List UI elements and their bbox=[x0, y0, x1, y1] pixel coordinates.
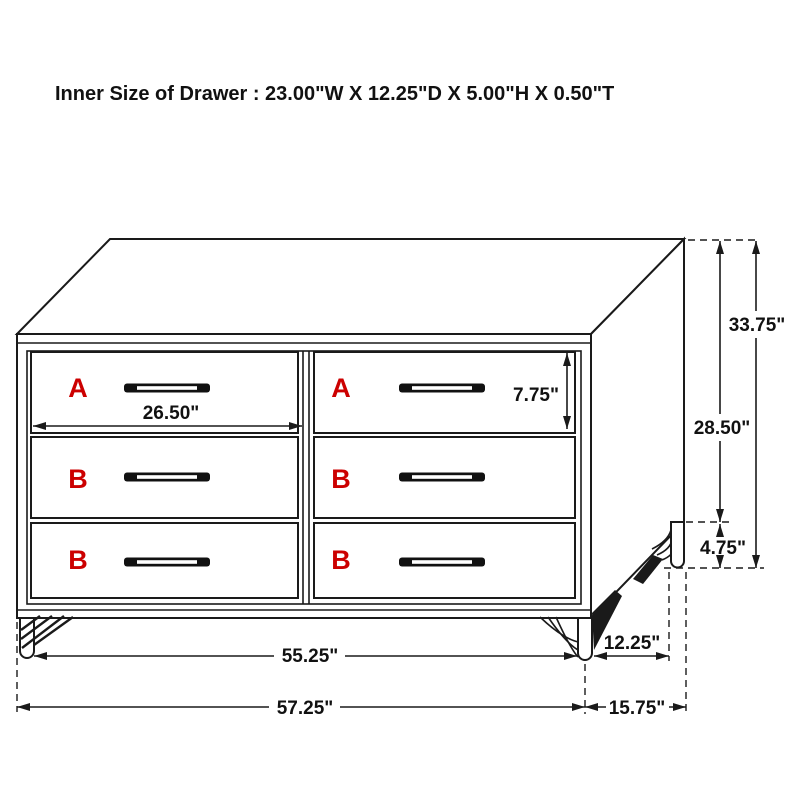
drawer-handle bbox=[399, 384, 485, 393]
drawer-handle bbox=[124, 558, 210, 567]
dim-leg-depth: 12.25" bbox=[594, 633, 669, 656]
dim-overall-width-label: 57.25" bbox=[277, 698, 334, 719]
drawer-letter-middle-left: B bbox=[68, 464, 88, 494]
page-title: Inner Size of Drawer : 23.00"W X 12.25"D… bbox=[55, 83, 614, 105]
front-left-leg bbox=[20, 616, 73, 658]
drawer-handle bbox=[399, 558, 485, 567]
furniture-dimension-diagram: Inner Size of Drawer : 23.00"W X 12.25"D… bbox=[0, 0, 800, 800]
dim-drawer-front-height-label: 7.75" bbox=[513, 385, 559, 406]
dim-leg-height-label: 4.75" bbox=[700, 538, 746, 559]
dim-overall-depth-label: 15.75" bbox=[609, 698, 666, 719]
diagram-canvas: Inner Size of Drawer : 23.00"W X 12.25"D… bbox=[0, 0, 800, 800]
dim-width-between-legs: 55.25" bbox=[34, 646, 577, 667]
drawer-letter-bottom-left: B bbox=[68, 545, 88, 575]
dim-overall-width: 57.25" bbox=[17, 698, 585, 719]
dim-leg-height: 4.75" bbox=[700, 524, 746, 568]
dim-leg-depth-label: 12.25" bbox=[604, 633, 661, 654]
dim-drawer-width-label: 26.50" bbox=[143, 403, 200, 424]
drawer-letter-bottom-right: B bbox=[331, 545, 351, 575]
dim-overall-height: 33.75" bbox=[729, 241, 786, 568]
dim-case-height: 28.50" bbox=[694, 241, 751, 522]
drawer-letter-middle-right: B bbox=[331, 464, 351, 494]
dim-width-between-legs-label: 55.25" bbox=[282, 646, 339, 667]
dim-overall-height-label: 33.75" bbox=[729, 315, 786, 336]
dresser-top-face bbox=[17, 239, 684, 334]
dim-case-height-label: 28.50" bbox=[694, 418, 751, 439]
drawer-handle bbox=[124, 473, 210, 482]
dresser-drawing: A A B B B B bbox=[17, 239, 684, 660]
drawer-letter-top-right: A bbox=[331, 373, 351, 403]
drawer-letter-top-left: A bbox=[68, 373, 88, 403]
drawer-handle bbox=[124, 384, 210, 393]
dim-overall-depth: 15.75" bbox=[585, 698, 686, 719]
drawer-handle bbox=[399, 473, 485, 482]
